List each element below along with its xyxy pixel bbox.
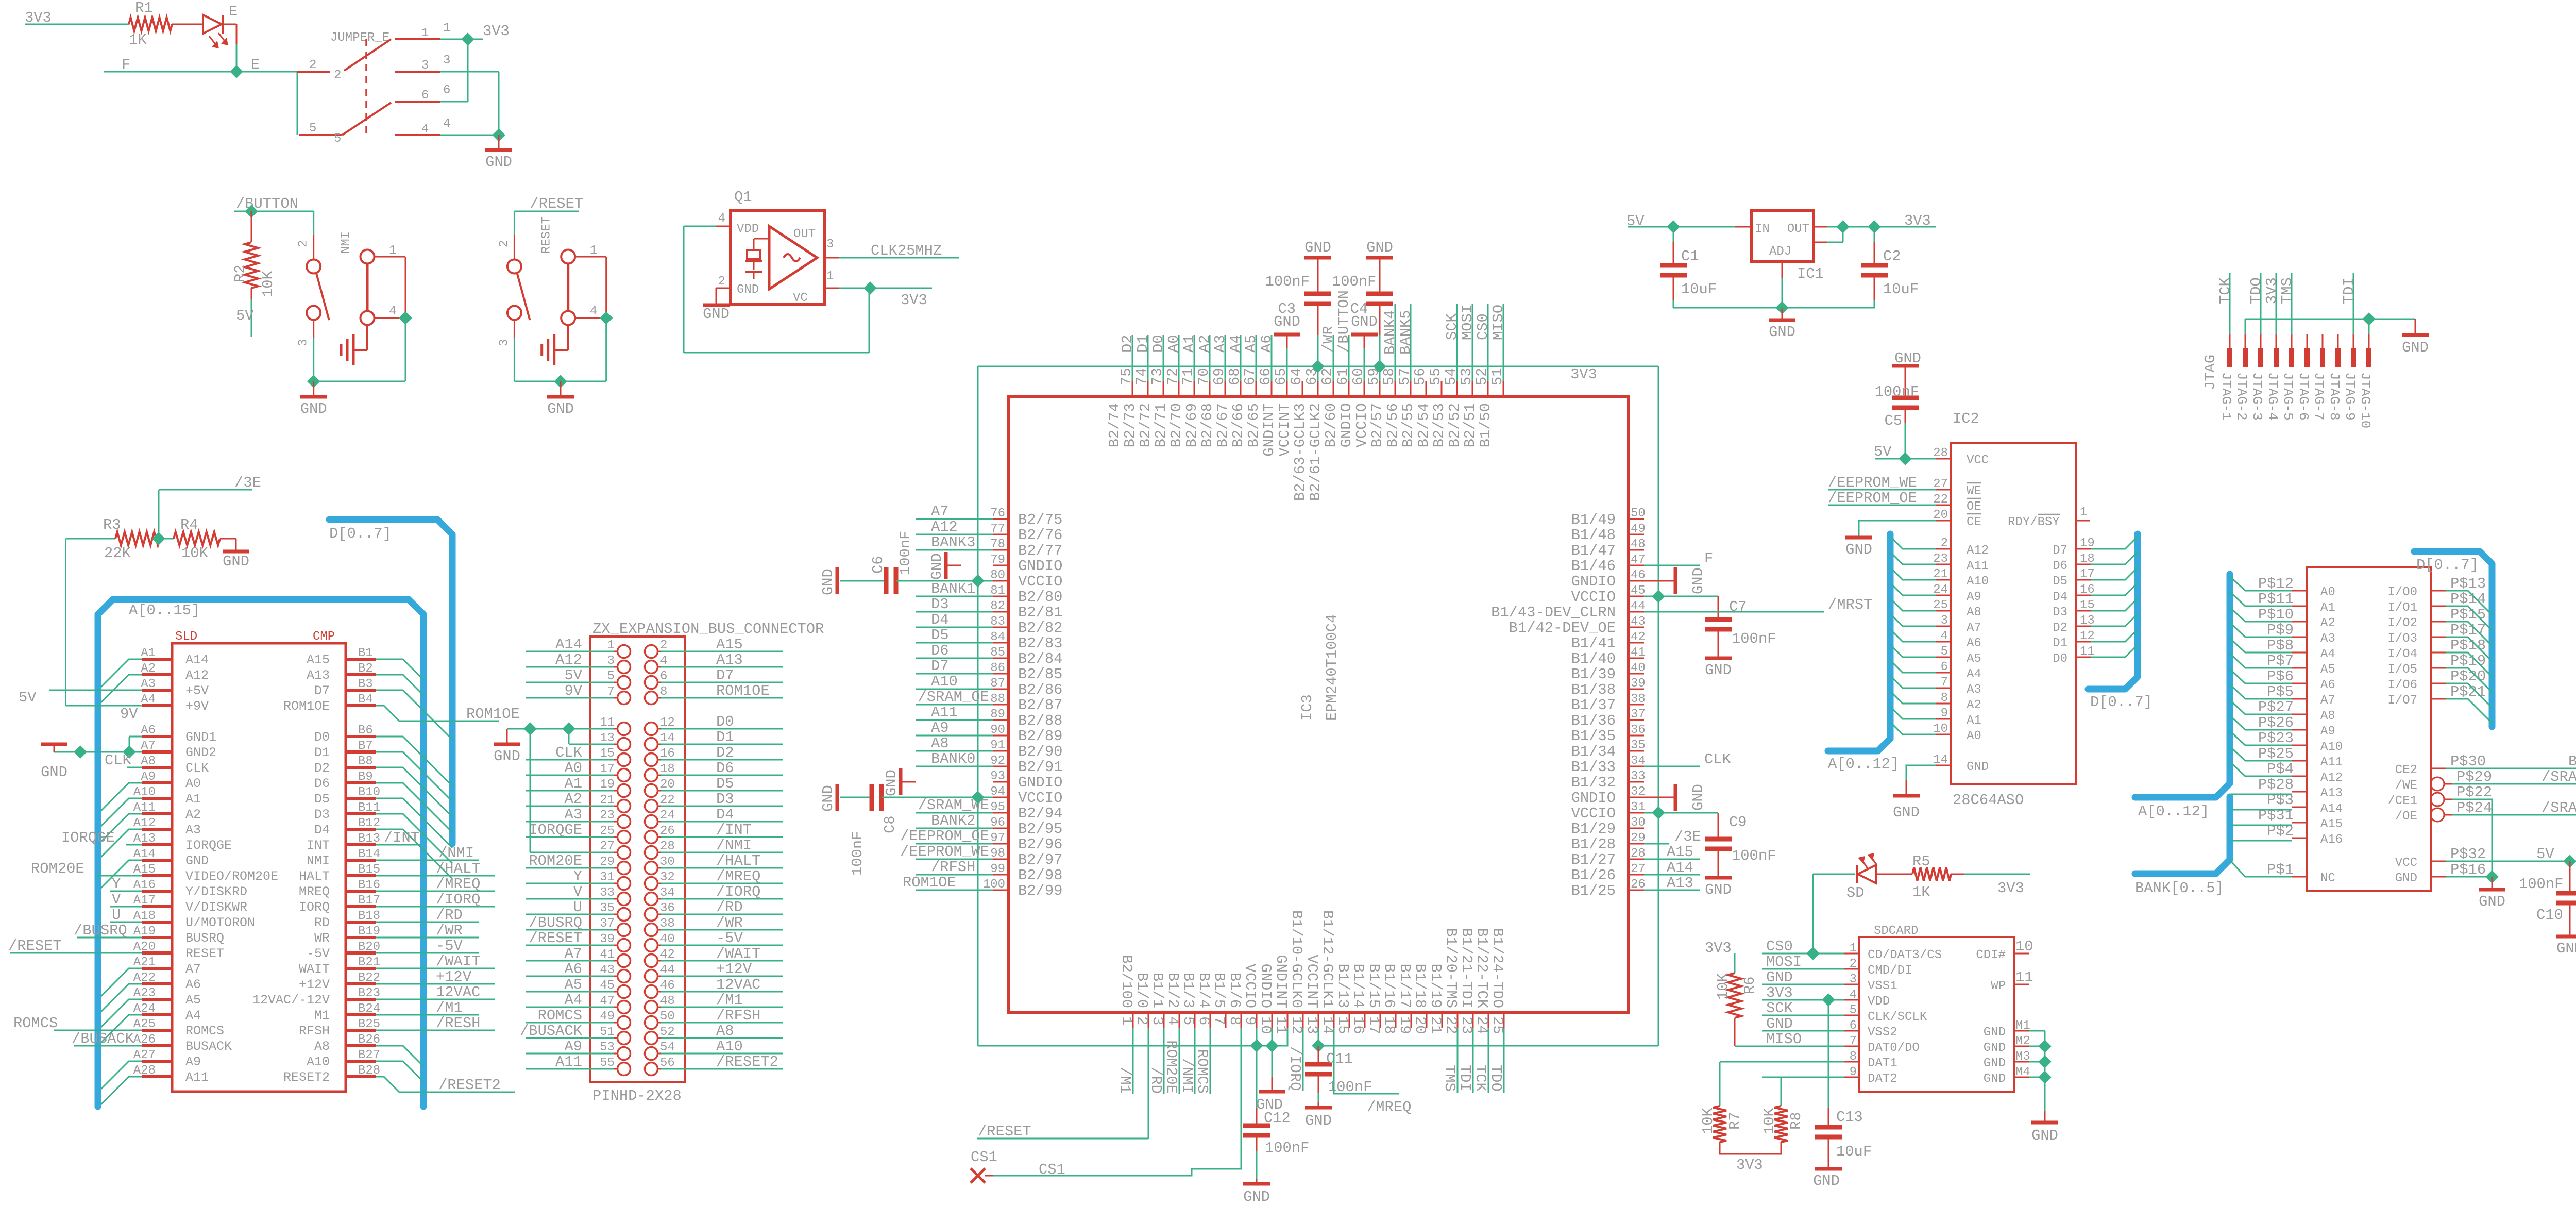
svg-text:A6: A6	[141, 724, 156, 738]
svg-text:1: 1	[421, 26, 429, 40]
svg-text:U: U	[112, 907, 121, 924]
svg-text:B1/25: B1/25	[1571, 882, 1616, 899]
svg-text:CDI#: CDI#	[1976, 948, 2006, 962]
svg-text:A15: A15	[307, 652, 330, 667]
svg-text:+9V: +9V	[185, 699, 209, 714]
svg-text:A[0..15]: A[0..15]	[129, 602, 200, 619]
svg-text:8: 8	[660, 685, 667, 699]
svg-text:P$23: P$23	[2258, 730, 2294, 747]
svg-text:B1/38: B1/38	[1571, 681, 1616, 698]
svg-text:P$22: P$22	[2456, 784, 2492, 801]
svg-text:/EEPROM_OE: /EEPROM_OE	[1828, 490, 1917, 507]
svg-text:15: 15	[600, 747, 615, 761]
svg-text:B28: B28	[358, 1064, 380, 1078]
svg-text:GND: GND	[883, 769, 900, 796]
svg-text:A19: A19	[133, 925, 156, 939]
svg-text:56: 56	[1412, 367, 1429, 386]
svg-text:E: E	[229, 3, 238, 20]
svg-text:CS0: CS0	[1475, 313, 1492, 340]
svg-text:A10: A10	[1967, 575, 1989, 589]
svg-text:B2/60: B2/60	[1323, 403, 1340, 447]
svg-text:D0: D0	[716, 713, 734, 730]
svg-text:I/O0: I/O0	[2387, 585, 2417, 599]
svg-text:46: 46	[1631, 568, 1646, 582]
svg-text:B1/3: B1/3	[1180, 973, 1197, 1008]
svg-text:B1/35: B1/35	[1571, 728, 1616, 745]
svg-text:48: 48	[1631, 538, 1646, 551]
svg-text:C1: C1	[1681, 248, 1699, 265]
svg-text:P$16: P$16	[2450, 861, 2486, 878]
svg-text:20: 20	[660, 778, 675, 792]
svg-text:52: 52	[660, 1025, 675, 1039]
svg-text:B2/75: B2/75	[1018, 511, 1062, 528]
svg-text:B1/46: B1/46	[1571, 558, 1616, 575]
svg-text:A4: A4	[185, 1008, 201, 1023]
svg-text:1: 1	[1850, 942, 1857, 956]
svg-text:B2/89: B2/89	[1018, 728, 1062, 745]
svg-text:A3: A3	[2320, 632, 2335, 646]
svg-text:P$17: P$17	[2450, 622, 2486, 639]
svg-text:VDD: VDD	[737, 222, 759, 236]
svg-text:D2: D2	[1119, 334, 1136, 353]
svg-text:NMI: NMI	[307, 853, 330, 868]
svg-text:ROMCS: ROMCS	[1194, 1049, 1211, 1094]
svg-text:P$9: P$9	[2267, 622, 2294, 639]
svg-text:BANK2: BANK2	[931, 812, 975, 829]
svg-text:VCC: VCC	[1967, 454, 1989, 467]
svg-text:P$21: P$21	[2450, 683, 2486, 700]
svg-text:A11: A11	[133, 801, 156, 815]
svg-text:3: 3	[1149, 1016, 1166, 1025]
svg-text:D7: D7	[931, 658, 949, 675]
svg-text:D0: D0	[2053, 652, 2067, 666]
svg-text:D7: D7	[716, 667, 734, 684]
svg-text:B2/99: B2/99	[1018, 882, 1062, 899]
svg-text:B2/77: B2/77	[1018, 542, 1062, 559]
svg-text:A3: A3	[185, 823, 201, 838]
svg-text:53: 53	[600, 1041, 615, 1055]
svg-text:R4: R4	[180, 516, 198, 533]
svg-text:VCCINT: VCCINT	[1303, 955, 1320, 1008]
svg-text:GND: GND	[300, 400, 327, 417]
svg-text:25: 25	[600, 824, 615, 838]
svg-text:30: 30	[660, 855, 675, 869]
svg-text:/M1: /M1	[436, 999, 463, 1016]
svg-text:GND: GND	[185, 853, 209, 868]
svg-text:B1/14: B1/14	[1350, 964, 1367, 1008]
svg-text:DAT2: DAT2	[1868, 1072, 1897, 1086]
svg-text:48: 48	[660, 994, 675, 1008]
svg-text:6: 6	[1195, 1016, 1212, 1025]
svg-text:43: 43	[600, 963, 615, 977]
svg-text:A20: A20	[133, 940, 156, 954]
svg-text:18: 18	[1381, 1016, 1398, 1034]
svg-text:47: 47	[600, 994, 615, 1008]
svg-text:VCC: VCC	[2395, 856, 2417, 870]
svg-text:39: 39	[1631, 677, 1646, 691]
svg-text:C10: C10	[2536, 907, 2563, 924]
svg-text:ROMCS: ROMCS	[538, 1007, 582, 1024]
svg-text:VCCIO: VCCIO	[1571, 805, 1616, 822]
svg-text:/WAIT: /WAIT	[716, 945, 760, 962]
svg-text:2: 2	[1133, 1016, 1150, 1025]
svg-text:B1/47: B1/47	[1571, 542, 1616, 559]
svg-text:CE: CE	[1967, 515, 1981, 529]
svg-text:35: 35	[600, 901, 615, 915]
svg-text:Y: Y	[573, 868, 582, 885]
svg-text:/MRST: /MRST	[1828, 596, 1872, 613]
svg-text:M3: M3	[2015, 1050, 2030, 1064]
svg-text:GND: GND	[547, 400, 574, 417]
svg-text:JUMPER_E: JUMPER_E	[330, 31, 389, 45]
svg-text:55: 55	[1427, 367, 1444, 386]
svg-text:B2/63-GCLK3: B2/63-GCLK3	[1292, 403, 1309, 501]
svg-text:A8: A8	[1967, 606, 1981, 620]
svg-text:3V3: 3V3	[483, 23, 510, 40]
svg-text:F: F	[1704, 550, 1713, 567]
svg-text:WAIT: WAIT	[299, 962, 330, 977]
svg-text:VCCIO: VCCIO	[1018, 790, 1062, 807]
svg-text:P$12: P$12	[2258, 575, 2294, 592]
svg-text:VCCIO: VCCIO	[1353, 403, 1370, 447]
svg-text:ROMCS: ROMCS	[185, 1024, 224, 1039]
svg-text:11: 11	[2015, 969, 2033, 986]
svg-text:D6: D6	[716, 760, 734, 777]
svg-text:2: 2	[497, 240, 511, 247]
svg-text:GND: GND	[1766, 1015, 1793, 1032]
svg-text:ZX_EXPANSION_BUS_CONNECTOR: ZX_EXPANSION_BUS_CONNECTOR	[592, 621, 824, 638]
svg-text:18: 18	[660, 762, 675, 776]
svg-text:BANK3: BANK3	[931, 534, 975, 551]
svg-text:CLK: CLK	[185, 761, 209, 776]
svg-text:A5: A5	[2320, 663, 2335, 677]
svg-text:JTAG-9: JTAG-9	[2342, 372, 2358, 421]
svg-text:B2/85: B2/85	[1018, 666, 1062, 683]
svg-text:JTAG-1: JTAG-1	[2218, 372, 2234, 421]
svg-text:4: 4	[718, 212, 725, 226]
svg-text:C6: C6	[870, 556, 887, 574]
svg-text:10K: 10K	[1761, 1107, 1778, 1134]
svg-text:SCK: SCK	[1766, 1000, 1793, 1017]
svg-text:V: V	[573, 883, 583, 900]
svg-text:GNDIO: GNDIO	[1338, 403, 1355, 447]
svg-text:12: 12	[660, 716, 675, 730]
svg-text:CS0: CS0	[1766, 938, 1793, 955]
svg-text:B1/20-TMS: B1/20-TMS	[1443, 928, 1460, 1008]
svg-text:D1: D1	[716, 729, 734, 746]
svg-text:CS1: CS1	[971, 1149, 997, 1166]
svg-text:15: 15	[1334, 1016, 1351, 1034]
svg-text:Q1: Q1	[734, 189, 752, 206]
svg-text:WR: WR	[314, 931, 330, 946]
svg-text:GND: GND	[223, 553, 249, 570]
svg-text:C7: C7	[1729, 598, 1747, 615]
svg-text:26: 26	[660, 824, 675, 838]
svg-text:/NMI: /NMI	[716, 837, 752, 854]
svg-text:37: 37	[1631, 708, 1646, 722]
svg-text:A17: A17	[133, 894, 156, 908]
svg-text:3V3: 3V3	[1570, 366, 1597, 383]
svg-text:A26: A26	[133, 1033, 156, 1047]
svg-text:A11: A11	[185, 1070, 209, 1085]
svg-text:TDI: TDI	[1456, 1065, 1473, 1092]
svg-text:A6: A6	[1967, 637, 1981, 650]
svg-text:A21: A21	[133, 956, 156, 969]
svg-text:5: 5	[1850, 1003, 1857, 1017]
svg-text:/3E: /3E	[1674, 828, 1701, 845]
svg-text:C2: C2	[1883, 248, 1901, 265]
svg-text:D3: D3	[931, 596, 949, 613]
svg-text:JTAG-8: JTAG-8	[2327, 372, 2342, 421]
svg-text:B2/94: B2/94	[1018, 805, 1062, 822]
svg-text:R5: R5	[1912, 853, 1930, 870]
svg-text:D1: D1	[314, 745, 330, 760]
svg-text:D[0..7]: D[0..7]	[329, 525, 392, 542]
svg-text:/HALT: /HALT	[436, 860, 480, 877]
svg-text:3: 3	[607, 654, 615, 668]
svg-text:B2/51: B2/51	[1462, 403, 1479, 447]
svg-text:D5: D5	[2053, 575, 2067, 589]
svg-text:/BUTTON: /BUTTON	[236, 195, 298, 212]
svg-text:BANK5: BANK5	[2568, 753, 2576, 770]
svg-text:I/O2: I/O2	[2387, 616, 2417, 630]
svg-text:D2: D2	[314, 761, 330, 776]
svg-text:GND: GND	[1305, 1112, 1332, 1129]
svg-text:DAT1: DAT1	[1868, 1057, 1897, 1070]
svg-text:B11: B11	[358, 801, 380, 815]
svg-text:/RESET: /RESET	[529, 930, 582, 947]
svg-text:5V: 5V	[2536, 846, 2554, 863]
svg-text:21: 21	[1427, 1016, 1444, 1034]
svg-text:A3: A3	[1967, 683, 1981, 697]
svg-text:MREQ: MREQ	[299, 884, 330, 899]
svg-text:OUT: OUT	[793, 227, 816, 241]
svg-text:B2/86: B2/86	[1018, 681, 1062, 698]
svg-text:GND: GND	[1690, 784, 1707, 811]
svg-text:B23: B23	[358, 986, 380, 1000]
svg-text:A4: A4	[564, 992, 582, 1009]
svg-text:D6: D6	[931, 642, 949, 659]
svg-text:OUT: OUT	[1787, 222, 1809, 236]
svg-text:B1/24-TDO: B1/24-TDO	[1489, 928, 1506, 1008]
svg-text:D0: D0	[1150, 334, 1167, 353]
svg-text:/MREQ: /MREQ	[1367, 1099, 1411, 1116]
svg-text:44: 44	[1631, 599, 1646, 613]
svg-text:/EEPROM_WE: /EEPROM_WE	[900, 843, 989, 860]
svg-text:4: 4	[660, 654, 667, 668]
svg-text:36: 36	[1631, 723, 1646, 737]
svg-text:GND: GND	[1366, 239, 1393, 256]
svg-text:100nF: 100nF	[1732, 630, 1776, 647]
svg-text:/SRAM_WE: /SRAM_WE	[2541, 768, 2576, 785]
svg-text:37: 37	[600, 917, 615, 931]
svg-text:P$6: P$6	[2267, 668, 2294, 685]
svg-text:GND: GND	[1893, 804, 1920, 821]
svg-text:29: 29	[600, 855, 615, 869]
svg-text:A10: A10	[716, 1038, 743, 1055]
svg-text:A18: A18	[133, 909, 156, 923]
svg-text:+12V: +12V	[436, 968, 472, 985]
svg-text:50: 50	[1631, 507, 1646, 521]
svg-text:6: 6	[443, 83, 450, 97]
svg-text:A9: A9	[931, 719, 949, 737]
svg-text:17: 17	[1365, 1016, 1382, 1034]
svg-text:C13: C13	[1836, 1109, 1863, 1126]
svg-text:D7: D7	[314, 683, 330, 698]
svg-text:GND: GND	[494, 748, 520, 765]
svg-text:A0: A0	[564, 760, 582, 777]
svg-text:SLD: SLD	[175, 630, 197, 644]
svg-text:R7: R7	[1726, 1112, 1743, 1130]
svg-text:B21: B21	[358, 956, 380, 969]
svg-text:50: 50	[660, 1010, 675, 1024]
svg-text:A11: A11	[2320, 756, 2343, 769]
svg-text:5: 5	[309, 122, 316, 136]
svg-text:ROMCS: ROMCS	[13, 1015, 58, 1032]
svg-text:GND: GND	[1845, 541, 1872, 558]
svg-text:-5V: -5V	[436, 938, 463, 955]
svg-text:B1/18: B1/18	[1412, 964, 1429, 1008]
svg-text:A1: A1	[2320, 601, 2335, 615]
svg-text:B1/6: B1/6	[1226, 973, 1243, 1008]
svg-text:P$14: P$14	[2450, 591, 2486, 608]
svg-text:A15: A15	[2320, 817, 2343, 831]
svg-text:44: 44	[660, 963, 675, 977]
svg-text:A[0..12]: A[0..12]	[2138, 803, 2209, 820]
svg-text:/WR: /WR	[436, 922, 463, 939]
svg-text:7: 7	[1211, 1016, 1228, 1025]
svg-text:/RESET: /RESET	[978, 1123, 1031, 1140]
svg-text:A0: A0	[2320, 585, 2335, 599]
svg-text:5: 5	[607, 670, 615, 683]
svg-text:IORQGE: IORQGE	[185, 838, 232, 853]
svg-text:B1/39: B1/39	[1571, 666, 1616, 683]
svg-text:BUSRQ: BUSRQ	[185, 931, 224, 946]
svg-text:B22: B22	[358, 971, 380, 985]
svg-text:45: 45	[600, 979, 615, 993]
svg-text:6: 6	[421, 89, 429, 103]
svg-text:P$30: P$30	[2450, 753, 2486, 770]
svg-text:B2/90: B2/90	[1018, 743, 1062, 760]
svg-text:B1/5: B1/5	[1211, 973, 1228, 1008]
svg-text:A0: A0	[1165, 334, 1182, 353]
svg-text:12VAC: 12VAC	[436, 984, 480, 1001]
svg-text:GND: GND	[41, 764, 67, 781]
svg-text:5: 5	[1941, 645, 1948, 659]
svg-text:BANK1: BANK1	[931, 580, 975, 597]
svg-text:A15: A15	[133, 863, 156, 877]
svg-text:A12: A12	[133, 816, 156, 830]
svg-text:14: 14	[660, 731, 675, 745]
svg-text:GNDIO: GNDIO	[1571, 790, 1616, 807]
svg-text:/WR: /WR	[716, 914, 743, 931]
svg-text:A13: A13	[133, 832, 156, 846]
svg-text:21: 21	[600, 793, 615, 807]
svg-text:PINHD-2X28: PINHD-2X28	[592, 1087, 682, 1104]
svg-text:BUSACK: BUSACK	[185, 1039, 232, 1054]
svg-text:A7: A7	[2320, 694, 2335, 708]
svg-text:A7: A7	[1967, 621, 1981, 635]
svg-text:B2/100: B2/100	[1118, 955, 1135, 1008]
svg-text:A8: A8	[2320, 709, 2335, 723]
svg-text:19: 19	[1396, 1016, 1413, 1034]
svg-text:A10: A10	[133, 785, 156, 799]
svg-text:A[0..12]: A[0..12]	[1828, 756, 1899, 773]
svg-text:DAT0/DO: DAT0/DO	[1868, 1041, 1920, 1055]
svg-text:3: 3	[497, 339, 511, 346]
svg-text:A6: A6	[1258, 334, 1275, 353]
svg-text:RESET2: RESET2	[283, 1070, 330, 1085]
svg-text:10K: 10K	[1715, 973, 1732, 1000]
svg-text:A2: A2	[141, 662, 156, 676]
svg-text:3: 3	[443, 54, 450, 68]
svg-text:B2/56: B2/56	[1384, 403, 1401, 447]
svg-text:NMI: NMI	[339, 231, 353, 254]
svg-text:22K: 22K	[104, 545, 131, 562]
svg-text:28: 28	[660, 840, 675, 853]
svg-text:D1: D1	[2053, 637, 2067, 650]
svg-text:CD/DAT3/CS: CD/DAT3/CS	[1868, 948, 1942, 962]
svg-text:100nF: 100nF	[2519, 876, 2563, 893]
svg-text:B1/10-GCLK0: B1/10-GCLK0	[1288, 910, 1305, 1008]
svg-text:/OE: /OE	[2395, 810, 2417, 824]
svg-text:/EEPROM_WE: /EEPROM_WE	[1828, 474, 1917, 491]
svg-text:13: 13	[600, 731, 615, 745]
svg-text:A23: A23	[133, 986, 156, 1000]
svg-text:P$1: P$1	[2267, 861, 2294, 878]
svg-text:/IORQ: /IORQ	[1286, 1046, 1303, 1091]
svg-text:19: 19	[600, 778, 615, 792]
svg-text:100nF: 100nF	[1265, 1140, 1309, 1157]
svg-text:GND1: GND1	[185, 730, 216, 745]
svg-text:A22: A22	[133, 971, 156, 985]
svg-text:WE: WE	[1967, 484, 1981, 498]
svg-text:GND: GND	[1243, 1189, 1270, 1205]
svg-text:/EEPROM_OE: /EEPROM_OE	[900, 828, 989, 845]
svg-text:B14: B14	[358, 847, 380, 861]
svg-text:B13: B13	[358, 832, 380, 846]
svg-text:/RESET: /RESET	[8, 938, 62, 955]
svg-text:IORQGE: IORQGE	[61, 829, 115, 846]
svg-text:P$11: P$11	[2258, 591, 2294, 608]
svg-text:10: 10	[2015, 938, 2033, 955]
svg-text:A12: A12	[185, 668, 209, 683]
svg-text:11: 11	[600, 716, 615, 730]
svg-text:C9: C9	[1729, 814, 1747, 831]
svg-text:ROM20E: ROM20E	[1163, 1040, 1180, 1094]
svg-text:TDO: TDO	[2248, 277, 2265, 304]
svg-text:20: 20	[1412, 1016, 1429, 1034]
svg-text:C5: C5	[1884, 412, 1902, 429]
svg-text:B26: B26	[358, 1033, 380, 1047]
svg-text:3V3: 3V3	[901, 292, 927, 309]
svg-text:A0: A0	[1967, 729, 1981, 743]
svg-text:GND: GND	[928, 553, 945, 580]
svg-text:17: 17	[600, 762, 615, 776]
svg-text:31: 31	[600, 871, 615, 884]
svg-text:R6: R6	[1741, 976, 1758, 994]
svg-text:/BUSACK: /BUSACK	[520, 1023, 583, 1040]
svg-text:A12: A12	[1967, 544, 1989, 558]
svg-text:B1/26: B1/26	[1571, 867, 1616, 884]
svg-text:TCK: TCK	[2217, 277, 2234, 304]
svg-text:41: 41	[600, 948, 615, 962]
svg-text:B7: B7	[358, 739, 373, 753]
svg-text:A24: A24	[133, 1002, 156, 1016]
svg-text:GND: GND	[820, 568, 837, 595]
svg-text:ROM20E: ROM20E	[31, 860, 84, 877]
svg-text:R1: R1	[135, 0, 153, 16]
